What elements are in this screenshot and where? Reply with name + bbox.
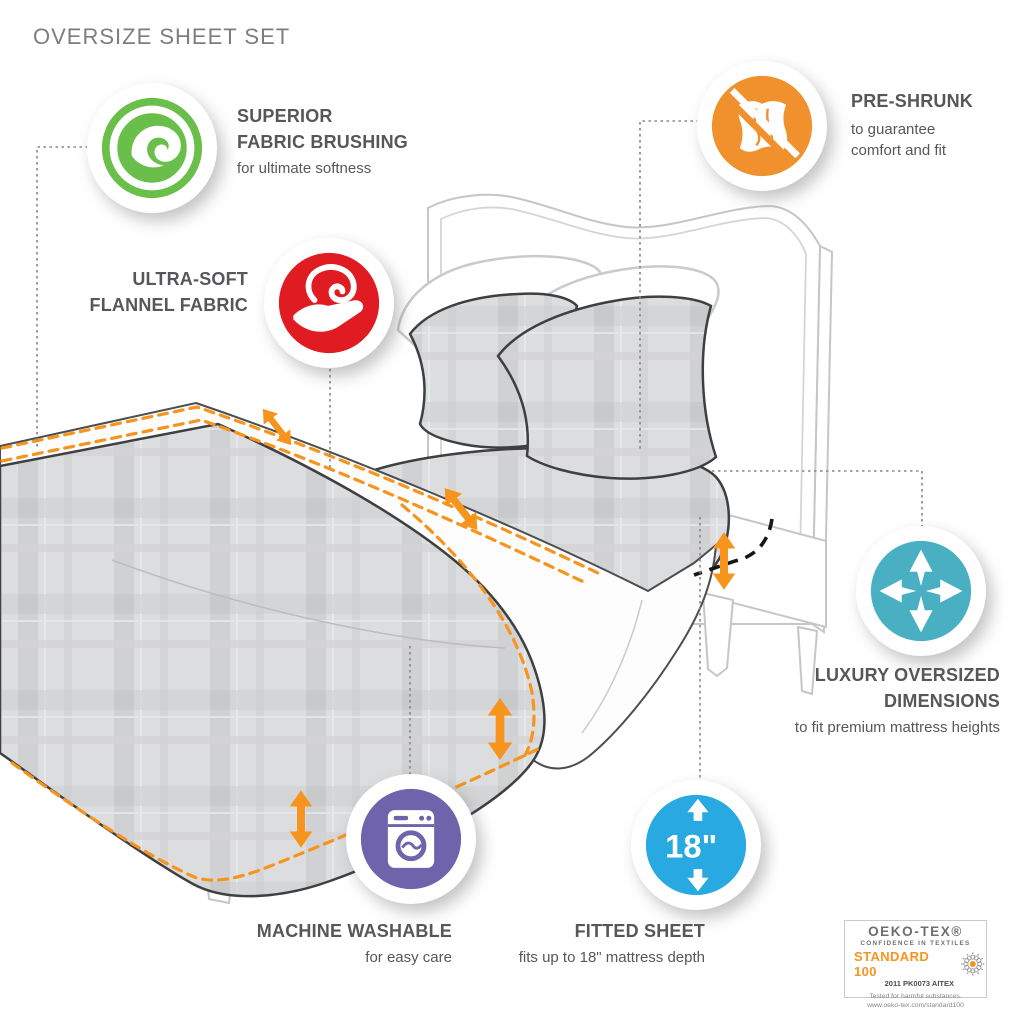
callout-title-line: MACHINE WASHABLE: [257, 918, 452, 944]
machine-washable-badge: [346, 774, 476, 904]
oeko-flower-icon: [960, 951, 986, 977]
callout-fitted-sheet: FITTED SHEET fits up to 18" mattress dep…: [519, 918, 705, 968]
callout-subtitle: to fit premium mattress heights: [795, 717, 1000, 738]
luxury-oversized-badge: [856, 526, 986, 656]
oeko-standard-label: STANDARD 100: [854, 949, 954, 979]
hand-holding-fabric-icon: [276, 250, 382, 356]
no-shrink-fabric-icon: [709, 73, 815, 179]
callout-title-line: DIMENSIONS: [795, 688, 1000, 714]
callout-ultra-soft-flannel: ULTRA-SOFT FLANNEL FABRIC: [90, 266, 248, 318]
callout-pre-shrunk: PRE-SHRUNK to guarantee comfort and fit: [851, 88, 973, 161]
ultra-soft-flannel-badge: [264, 238, 394, 368]
callout-subtitle: for easy care: [257, 947, 452, 968]
infographic-canvas: OVERSIZE SHEET SET: [0, 0, 1024, 1024]
callout-superior-fabric-brushing: SUPERIOR FABRIC BRUSHING for ultimate so…: [237, 103, 408, 179]
callout-subtitle: for ultimate softness: [237, 158, 408, 179]
mattress-depth-arrows-icon: 18": [643, 792, 749, 898]
leader-superior-fabric-brushing: [37, 147, 88, 447]
fitted-sheet-badge: 18": [631, 780, 761, 910]
callout-title-line: ULTRA-SOFT: [90, 266, 248, 292]
oeko-tex-brand: OEKO-TEX®: [845, 925, 986, 939]
expand-arrows-icon: [868, 538, 974, 644]
callout-title-line: SUPERIOR: [237, 103, 408, 129]
callout-title-line: FITTED SHEET: [519, 918, 705, 944]
mattress-depth-value: 18": [665, 828, 717, 865]
pre-shrunk-badge: [697, 61, 827, 191]
callout-title-line: FLANNEL FABRIC: [90, 292, 248, 318]
callout-machine-washable: MACHINE WASHABLE for easy care: [257, 918, 452, 968]
callout-title-line: PRE-SHRUNK: [851, 88, 973, 114]
callout-subtitle: fits up to 18" mattress depth: [519, 947, 705, 968]
oeko-tex-tagline: CONFIDENCE IN TEXTILES: [845, 939, 986, 948]
fabric-brushing-swirl-icon: [99, 95, 205, 201]
callout-subtitle: to guarantee: [851, 119, 973, 140]
callout-luxury-oversized-dimensions: LUXURY OVERSIZED DIMENSIONS to fit premi…: [795, 662, 1000, 738]
superior-fabric-brushing-badge: [87, 83, 217, 213]
callout-subtitle: comfort and fit: [851, 140, 973, 161]
oeko-standard-row: STANDARD 100: [845, 949, 986, 979]
oeko-certificate-number: 2011 PK0073 AITEX: [845, 979, 986, 989]
page-title: OVERSIZE SHEET SET: [33, 24, 290, 50]
callout-title-line: LUXURY OVERSIZED: [795, 662, 1000, 688]
oeko-note: Tested for harmful substances.: [845, 992, 986, 1001]
callout-title-line: FABRIC BRUSHING: [237, 129, 408, 155]
washing-machine-icon: [358, 786, 464, 892]
oeko-url: www.oeko-tex.com/standard100: [845, 1001, 986, 1010]
certification-box: OEKO-TEX® CONFIDENCE IN TEXTILES STANDAR…: [844, 920, 987, 998]
